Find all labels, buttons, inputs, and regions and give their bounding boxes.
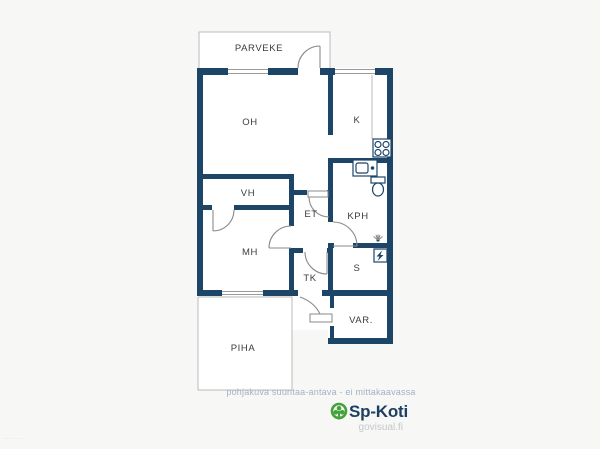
stove-icon — [373, 139, 391, 157]
room-label-et: ET — [304, 209, 317, 220]
sauna-heater-icon — [374, 249, 387, 262]
room-label-vh: VH — [241, 188, 255, 199]
room-label-mh: MH — [242, 247, 258, 258]
room-label-piha: PIHA — [231, 343, 256, 354]
sink-icon — [353, 160, 377, 176]
window-livingroom — [228, 68, 268, 75]
corner-watermark: ······· ······ — [3, 436, 26, 442]
window-bedroom — [222, 290, 263, 296]
toilet-icon — [371, 177, 385, 196]
floorplan-image: PARVEKE OH K VH ET KPH MH TK S VAR. PIHA… — [0, 0, 600, 449]
floorplan-svg: PARVEKE OH K VH ET KPH MH TK S VAR. PIHA… — [0, 0, 600, 449]
room-label-k: K — [354, 115, 361, 126]
spkoti-clover-icon — [332, 404, 346, 420]
room-label-parveke: PARVEKE — [235, 43, 283, 54]
window-kitchen — [335, 68, 375, 75]
room-label-kph: KPH — [347, 211, 368, 222]
brand-name: Sp-Koti — [349, 402, 408, 421]
room-label-tk: TK — [303, 273, 316, 284]
room-label-oh: OH — [242, 117, 257, 128]
room-label-s: S — [354, 263, 361, 274]
spkoti-logo: Sp-Koti govisual.fi — [332, 402, 408, 433]
room-label-var: VAR. — [349, 315, 373, 326]
disclaimer-caption: pohjakuva suuntaa-antava - ei mittakaava… — [226, 387, 415, 397]
brand-site: govisual.fi — [359, 422, 403, 433]
